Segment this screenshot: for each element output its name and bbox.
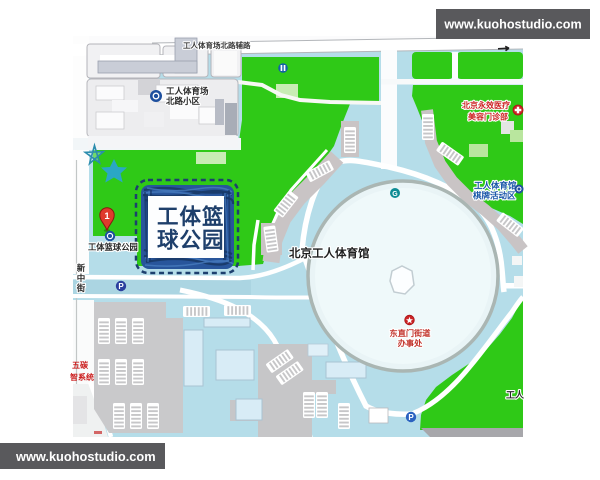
svg-text:智系统: 智系统 <box>70 372 94 382</box>
svg-text:中: 中 <box>77 273 86 283</box>
svg-text:www.kuohostudio.com: www.kuohostudio.com <box>15 449 156 464</box>
svg-text:1: 1 <box>104 211 110 222</box>
svg-text:北京永效医疗: 北京永效医疗 <box>462 100 510 110</box>
svg-text:G: G <box>392 191 398 198</box>
svg-text:街: 街 <box>76 283 86 293</box>
svg-text:球公园: 球公园 <box>157 229 225 253</box>
svg-text:棋牌活动区: 棋牌活动区 <box>472 191 516 201</box>
svg-text:工体篮球公园: 工体篮球公园 <box>88 242 138 252</box>
svg-text:东直门街道: 东直门街道 <box>390 328 432 338</box>
svg-text:P: P <box>408 413 414 422</box>
svg-text:工人体育场: 工人体育场 <box>166 86 209 96</box>
svg-text:美容门诊部: 美容门诊部 <box>468 112 508 122</box>
svg-text:工人体育馆: 工人体育馆 <box>474 181 517 191</box>
svg-text:北京工人体育馆: 北京工人体育馆 <box>289 246 370 260</box>
svg-text:新: 新 <box>77 263 86 273</box>
svg-text:办事处: 办事处 <box>398 338 423 348</box>
svg-text:工人: 工人 <box>506 389 525 400</box>
svg-text:工体篮: 工体篮 <box>157 204 225 229</box>
svg-text:www.kuohostudio.com: www.kuohostudio.com <box>443 18 581 32</box>
svg-text:五碳: 五碳 <box>72 360 89 370</box>
svg-text:北路小区: 北路小区 <box>166 96 201 106</box>
svg-text:工人体育场北路辅路: 工人体育场北路辅路 <box>183 40 251 50</box>
svg-text:P: P <box>118 282 124 291</box>
